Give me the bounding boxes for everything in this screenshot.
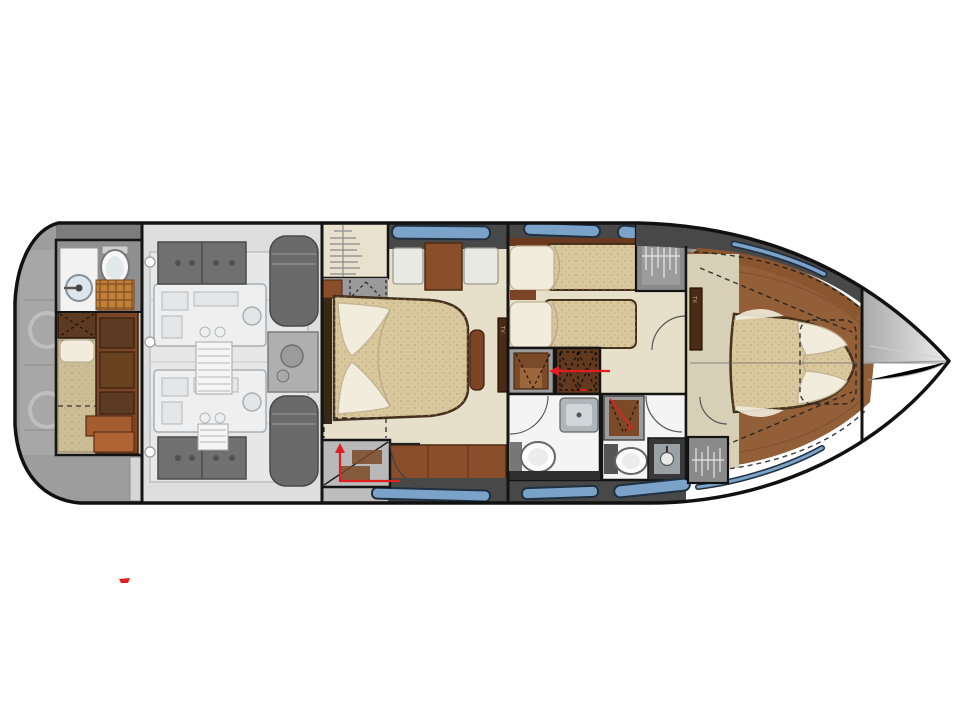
mid-shower bbox=[508, 348, 554, 394]
aft-stairs bbox=[322, 223, 388, 278]
crew-sink-icon bbox=[60, 248, 98, 312]
hull-window bbox=[372, 487, 490, 501]
twin-nightstand bbox=[510, 290, 536, 300]
wicker-mat bbox=[96, 280, 134, 310]
deck-plan-canvas: TV bbox=[0, 0, 960, 720]
dresser bbox=[425, 243, 462, 290]
owner-wardrobe bbox=[688, 437, 728, 483]
vip-bed bbox=[334, 296, 484, 420]
crew-toilet-icon bbox=[101, 246, 129, 284]
pillow bbox=[510, 302, 552, 348]
nightstand-starboard bbox=[464, 248, 498, 284]
sink-icon bbox=[560, 398, 598, 432]
toilet-icon bbox=[510, 442, 555, 472]
stray-red-mark bbox=[119, 578, 130, 583]
hull-window bbox=[524, 223, 600, 238]
mid-bathroom bbox=[508, 394, 600, 480]
fwd-bathroom bbox=[602, 394, 686, 480]
nightstand-port bbox=[393, 248, 423, 284]
sink-icon bbox=[648, 438, 686, 480]
pillow bbox=[510, 246, 554, 290]
tv-label: TV bbox=[499, 326, 505, 334]
hull-window bbox=[522, 486, 598, 500]
vip-bench bbox=[470, 330, 484, 390]
vip-cabinets bbox=[388, 445, 506, 479]
tv-label: TV bbox=[691, 296, 697, 304]
crew-pillow bbox=[60, 340, 94, 362]
twin-bed-upper bbox=[510, 244, 640, 290]
twin-bed-lower bbox=[510, 300, 636, 348]
crew-cabin bbox=[56, 223, 142, 455]
steps-icon bbox=[330, 238, 362, 274]
hull-window bbox=[392, 226, 490, 240]
engine-room bbox=[142, 223, 322, 503]
floor-plan-page: TV bbox=[0, 0, 960, 720]
